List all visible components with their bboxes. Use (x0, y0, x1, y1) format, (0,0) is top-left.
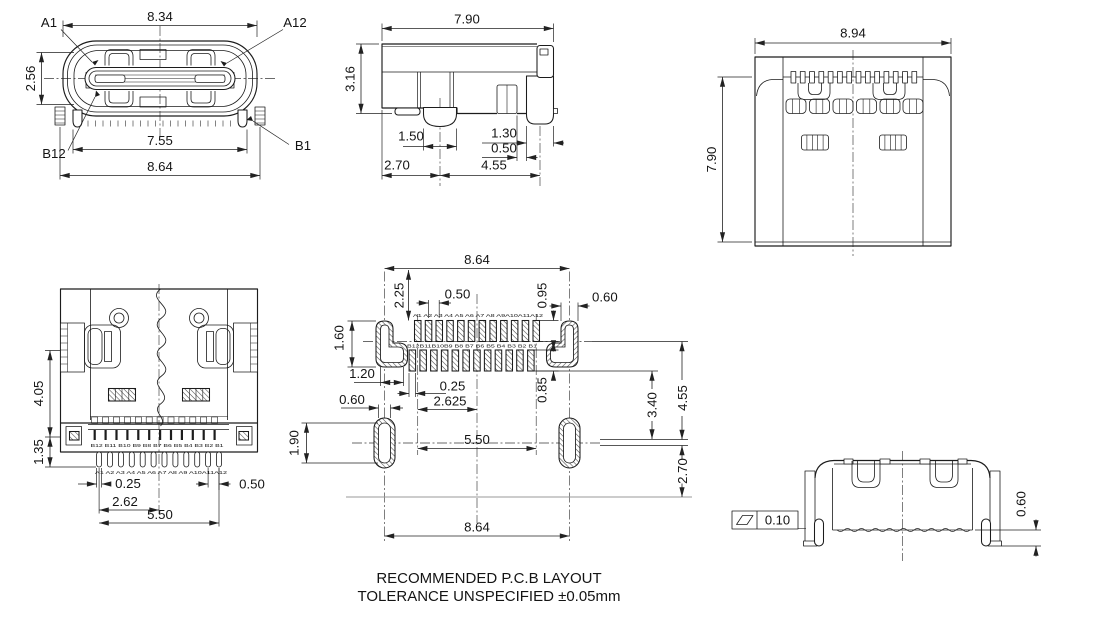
dim-hole-height: 1.90 (287, 430, 302, 456)
rear-shield-pin-right (982, 519, 991, 546)
pcb-dimensions: 8.64 2.25 0.50 0.95 0.60 1.60 1.20 (287, 252, 691, 536)
rear-view: 0.10 0.60 (732, 451, 1041, 561)
dim-lead-span-pcb: 5.50 (464, 432, 490, 447)
dim-shield-hole-width: 1.20 (349, 366, 375, 381)
dim-pad-length-b: 0.85 (535, 377, 550, 403)
dim-pin-width: 0.25 (115, 476, 141, 491)
dim-shell-height: 2.56 (23, 66, 38, 92)
note-title: RECOMMENDED P.C.B LAYOUT (376, 570, 601, 587)
dim-lead-span: 7.55 (147, 133, 173, 148)
dim-overall-width: 8.64 (147, 159, 173, 174)
note-tolerance: TOLERANCE UNSPECIFIED ±0.05mm (357, 588, 620, 605)
dim-lead-span-bottom: 5.50 (147, 507, 173, 522)
dim-lead-depth: 1.35 (31, 439, 46, 465)
dim-post-to-leg: 4.55 (481, 158, 507, 173)
dim-shield-span-top: 8.64 (464, 252, 490, 267)
pcb-pads-row-b (409, 350, 534, 371)
side-view: 7.90 3.16 1.50 1.30 0.50 2.70 4.55 (343, 12, 565, 187)
side-clip (537, 46, 554, 78)
dim-2-70: 2.70 (675, 458, 690, 484)
side-mount-leg (527, 76, 554, 124)
flatness-tolerance-value: 0.10 (765, 513, 790, 528)
dim-shield-pad-height: 1.60 (332, 325, 347, 351)
bottom-view: B12 B11 B10 B9 B8 B7 B6 B5 B4 B3 B2 B1 A… (31, 284, 265, 527)
flatness-control-frame: 0.10 (732, 511, 798, 529)
dim-pad-length-a: 0.95 (535, 283, 550, 309)
dim-depth: 7.90 (454, 12, 480, 27)
rear-shield-pin-left (815, 519, 824, 546)
front-leg-right (238, 110, 247, 127)
pcb-pad-row-b-labels: B12B11B10B9 B8 B7 B6 B5 B4 B3 B2 B1 (407, 344, 538, 349)
dim-width: 8.94 (840, 26, 866, 41)
dim-3-40: 3.40 (645, 392, 660, 418)
pin-label-b1: B1 (295, 138, 311, 153)
side-post (424, 108, 457, 127)
drawing-notes: RECOMMENDED P.C.B LAYOUT TOLERANCE UNSPE… (357, 570, 620, 605)
dim-standoff: 0.60 (1014, 491, 1029, 517)
connector-technical-drawing: 8.34 2.56 7.55 8.64 A1 A12 B12 B1 (0, 0, 1106, 619)
dim-top-depth: 7.90 (704, 147, 719, 173)
dim-height: 3.16 (343, 66, 358, 92)
front-view: 8.34 2.56 7.55 8.64 A1 A12 B12 B1 (23, 9, 311, 180)
dim-4-55: 4.55 (675, 385, 690, 411)
front-leg-left (73, 110, 82, 127)
dim-hole-width: 0.60 (339, 392, 365, 407)
dim-post-width: 1.50 (398, 129, 424, 144)
rear-view-body (798, 459, 1002, 546)
dim-front-to-post: 2.70 (384, 158, 410, 173)
front-view-dimensions: 8.34 2.56 7.55 8.64 A1 A12 B12 B1 (23, 9, 311, 180)
dim-pad-width: 0.25 (440, 379, 466, 394)
dim-edge-to-pads: 2.25 (392, 283, 407, 309)
pin-label-b12: B12 (42, 146, 65, 161)
dim-gap: 0.50 (491, 141, 517, 156)
top-contact-windows (786, 99, 923, 150)
side-view-body (382, 44, 558, 127)
dim-body-depth: 4.05 (31, 381, 46, 407)
dim-row-offset: 2.625 (433, 394, 466, 409)
bottom-pin-row-b: B12 B11 B10 B9 B8 B7 B6 B5 B4 B3 B2 B1 (91, 443, 225, 448)
dim-half-span: 2.62 (112, 494, 138, 509)
pin-label-a12: A12 (283, 15, 306, 30)
dim-pad-pitch: 0.50 (445, 287, 471, 302)
pcb-pad-row-a-labels: A1 A2 A3 A4 A5 A6 A7 A8 A9A10A11A12 (413, 313, 544, 318)
top-view: 8.94 7.90 (704, 26, 951, 257)
mold-parting-line (156, 289, 165, 426)
dim-end-pitch: 0.50 (239, 477, 265, 492)
dim-shell-width: 8.34 (147, 9, 173, 24)
technical-drawing-page: 8.34 2.56 7.55 8.64 A1 A12 B12 B1 (0, 0, 1106, 619)
side-foot (395, 108, 420, 115)
pcb-layout-view: A1 A2 A3 A4 A5 A6 A7 A8 A9A10A11A12 B12B… (287, 252, 693, 543)
dim-shield-pad-width: 0.60 (592, 290, 618, 305)
dim-leg-width: 1.30 (491, 126, 517, 141)
top-view-dimensions: 8.94 7.90 (704, 26, 951, 243)
dim-shield-span-bottom: 8.64 (464, 520, 490, 535)
pin-label-a1: A1 (41, 15, 57, 30)
